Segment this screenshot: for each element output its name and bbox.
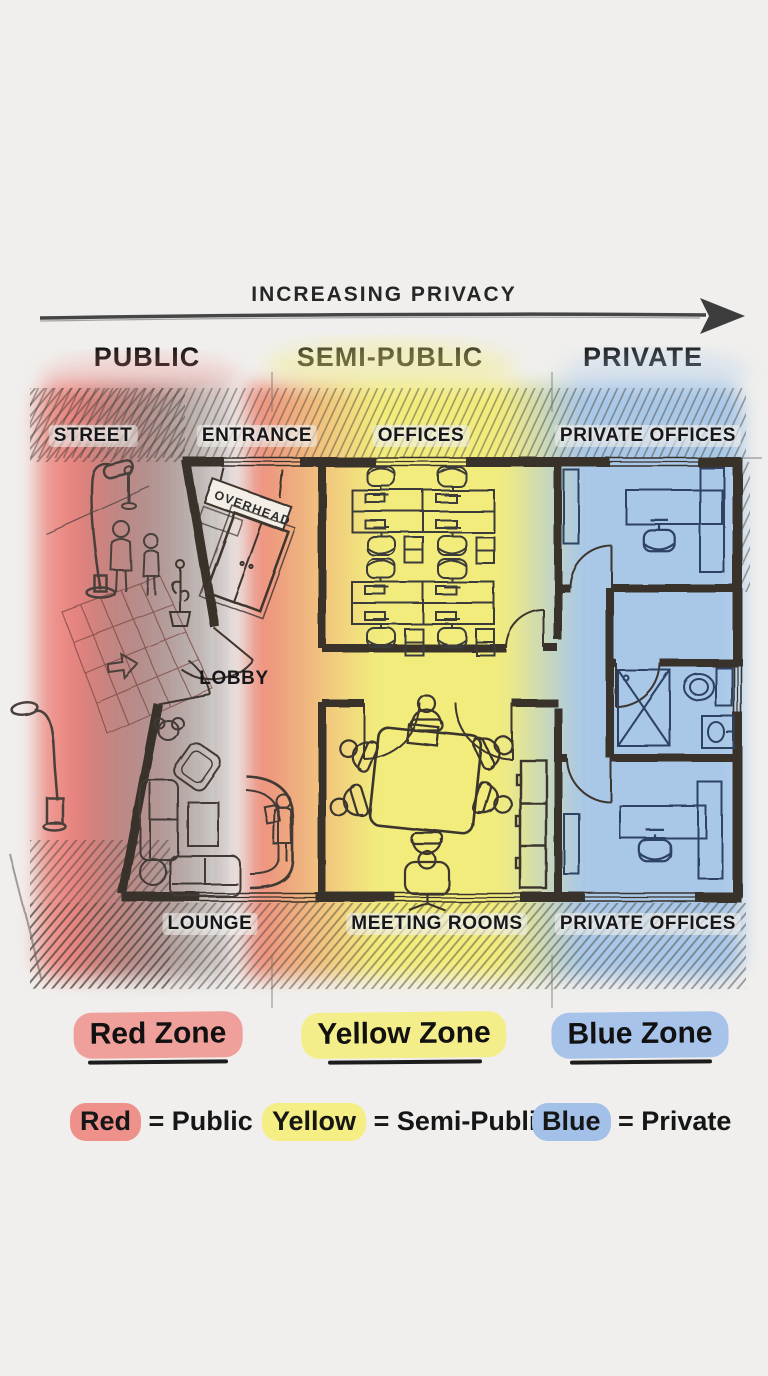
legend-term-red: Red (70, 1103, 141, 1141)
zone-label-yellow: Yellow Zone (301, 1011, 507, 1059)
label-lounge: LOUNGE (163, 913, 258, 935)
zone-label-blue: Blue Zone (551, 1011, 728, 1059)
label-street: STREET (49, 425, 138, 447)
label-entrance: ENTRANCE (197, 425, 317, 447)
legend-def-blue: = Private (618, 1106, 731, 1136)
floor-plan-drawing: OVERHEAD (0, 0, 768, 1376)
legend-item-yellow: Yellow = Semi-Public (262, 1106, 551, 1137)
zone-label-red: Red Zone (73, 1011, 242, 1059)
label-private-offices-top: PRIVATE OFFICES (555, 425, 741, 447)
privacy-zones-diagram: OVERHEAD INCREASING PRIVACY PUBLIC SEMI-… (0, 0, 768, 1376)
legend-term-blue: Blue (532, 1103, 611, 1141)
legend-term-yellow: Yellow (262, 1103, 366, 1141)
legend-def-yellow: = Semi-Public (374, 1106, 552, 1136)
legend-item-blue: Blue = Private (532, 1106, 731, 1137)
label-meeting-rooms: MEETING ROOMS (346, 913, 527, 935)
legend-item-red: Red = Public (70, 1106, 253, 1137)
privacy-arrow-icon (40, 298, 745, 334)
label-offices: OFFICES (373, 425, 470, 447)
label-private-offices-bottom: PRIVATE OFFICES (555, 913, 741, 935)
label-lobby: LOBBY (194, 668, 274, 690)
legend-def-red: = Public (149, 1106, 253, 1136)
